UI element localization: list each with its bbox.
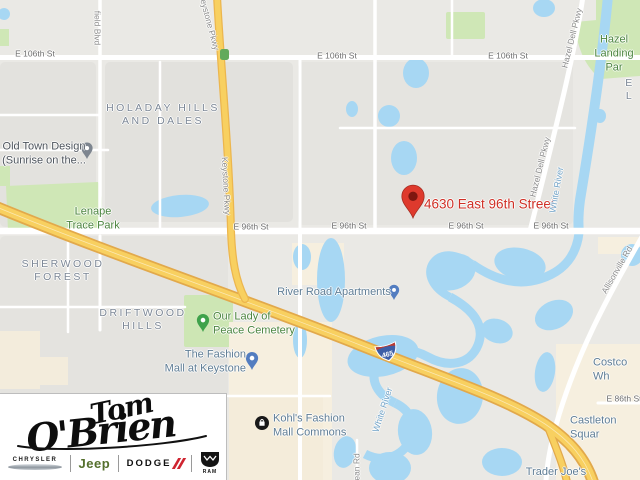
jeep-wordmark: Jeep	[79, 456, 111, 471]
jeep-logo: Jeep	[79, 456, 111, 471]
brand-divider	[70, 455, 71, 472]
chrysler-wing-icon	[8, 464, 62, 470]
dodge-wordmark: DODGE	[127, 458, 172, 469]
ram-wordmark: RAM	[203, 469, 217, 475]
dodge-slashes-icon	[173, 458, 183, 469]
map-canvas[interactable]: 465 E 106th StE 106th StE	[0, 0, 640, 480]
kohls-marker-icon	[255, 416, 269, 430]
brand-divider	[118, 455, 119, 472]
traffic-signal-icon	[220, 49, 229, 60]
ram-shield-icon	[200, 451, 220, 468]
ram-logo: RAM	[200, 451, 220, 475]
chrysler-wordmark: CHRYSLER	[13, 457, 58, 463]
brand-divider	[191, 455, 192, 472]
brand-logos-row: CHRYSLER Jeep DODGE RAM	[8, 450, 220, 476]
dodge-logo: DODGE	[127, 458, 184, 469]
dealer-logo: Tom O'Brien CHRYSLER Jeep DODGE	[0, 393, 227, 480]
chrysler-logo: CHRYSLER	[8, 457, 62, 470]
